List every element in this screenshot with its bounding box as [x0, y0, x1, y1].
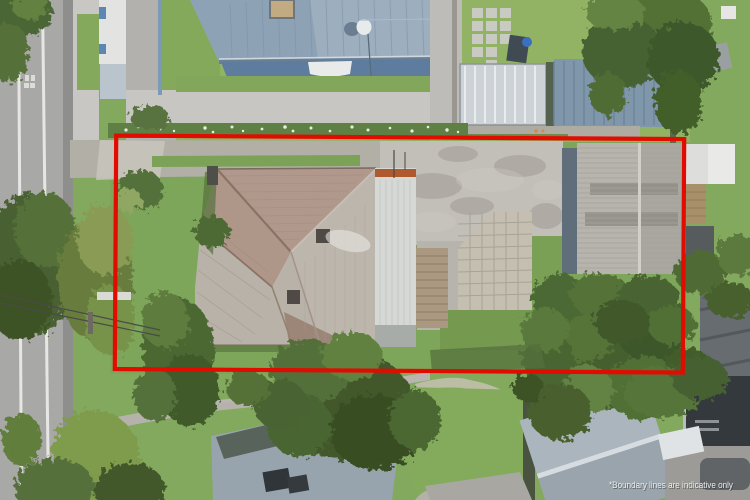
svg-text:*Boundary lines are indicative: *Boundary lines are indicative only [609, 480, 733, 491]
